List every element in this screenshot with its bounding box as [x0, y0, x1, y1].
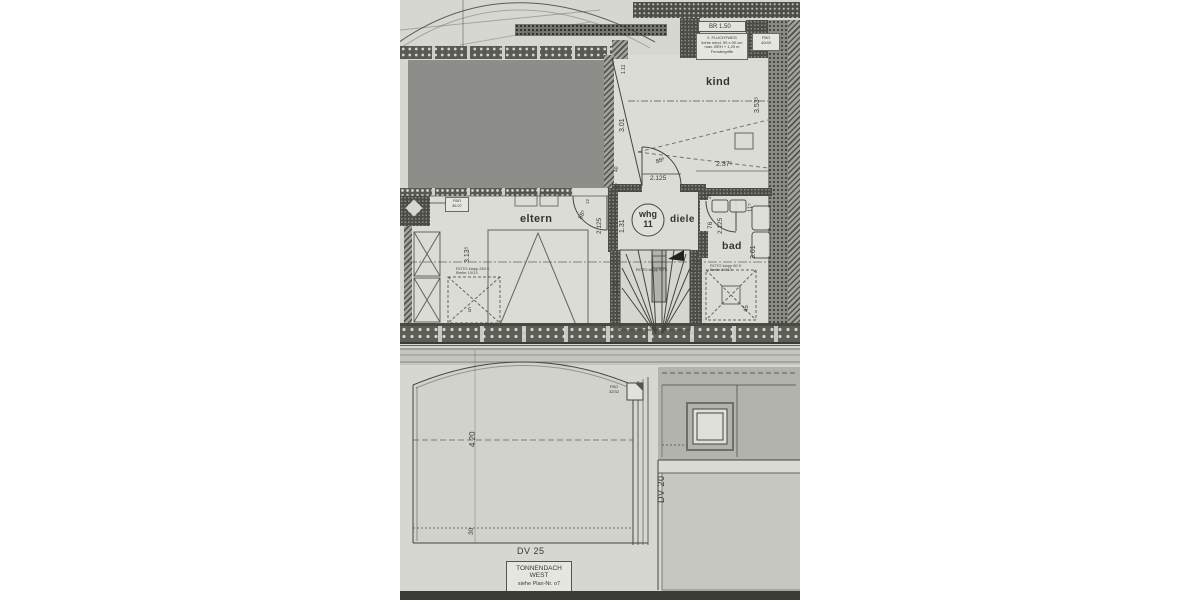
dim-diele-width: 1.31 — [619, 219, 626, 233]
fbo-tag-roof: FBO 32/32 — [603, 384, 625, 397]
dim-eltern-bottom: 5 — [468, 308, 471, 314]
room-label-bad: bad — [722, 240, 742, 252]
floor-plan-upper: BR 1.50 2. FLUCHTWEG lichte mind. 90 x 9… — [400, 0, 800, 345]
dim-kind-jamb-a: 40 — [615, 166, 620, 172]
roof-plan-linework — [400, 345, 800, 600]
room-label-kind: kind — [706, 76, 730, 88]
note-line-4: Fenstergriffe — [697, 50, 747, 55]
dim-eltern-door-height: 2.125 — [597, 218, 604, 234]
room-label-eltern: eltern — [520, 213, 552, 225]
dim-kind-height: 3.01 — [619, 118, 626, 132]
fbo-roof-line2: 32/32 — [603, 390, 625, 395]
window-bar: BR 1.50 — [698, 21, 746, 32]
dim-kind-top: 1.11 — [622, 65, 627, 74]
unit-badge-whg-11: whg 11 — [632, 204, 664, 236]
window-sill-height: BR 1.50 — [709, 24, 731, 30]
label-dv25: DV 25 — [517, 547, 545, 556]
roto-bad-line2: Breite 10/13 — [710, 268, 742, 272]
dim-eltern-top: 12 — [586, 199, 591, 204]
unit-badge-line1: whg — [632, 209, 664, 219]
roto-note-eltern: ROTO klapp 260 K Breite 10/13 — [456, 267, 490, 275]
label-dv20: DV 20 — [657, 475, 666, 503]
stair-note: ROTO klapp 60 K — [636, 268, 668, 272]
dim-roof-panel-height: 4.20 — [469, 431, 477, 447]
dim-kind-shelf: 3.53⁵ — [754, 96, 761, 113]
title-line-2: WEST — [507, 572, 571, 579]
dim-bad-top: 11⁵ — [748, 203, 754, 212]
roto-note-bad: ROTO klapp 80 K Breite 10/13 — [710, 264, 742, 272]
roof-plan-lower: FBO 32/32 4.20 30 DV 25 DV 20 TONNENDACH… — [400, 345, 800, 600]
dim-bad-bottom: 45 — [744, 305, 750, 312]
room-label-diele: diele — [670, 214, 695, 225]
dim-kind-door-height: 2.125 — [650, 176, 666, 183]
dim-eltern-height: 3.13⁵ — [464, 246, 471, 263]
dim-bad-door-height: 2.125 — [718, 218, 725, 234]
fbo-eltern-line2: 36.07 — [446, 204, 468, 209]
dim-bad-height: 3.01 — [750, 245, 757, 259]
dim-kind-jamb-b: 11⁵ — [615, 183, 620, 190]
title-line-3: siehe Plan-Nr. o7 — [507, 581, 571, 587]
scanned-plan-strip: BR 1.50 2. FLUCHTWEG lichte mind. 90 x 9… — [400, 0, 800, 600]
fbo-tag-kind: FBO 40/40 — [752, 33, 780, 51]
dim-kind-width: 2.37⁵ — [716, 161, 733, 168]
unit-badge-line2: 11 — [632, 219, 664, 229]
dim-bad-door-width: 76 — [708, 222, 715, 229]
dim-roof-panel-bottom: 30 — [469, 528, 476, 535]
dim-stair-length: 1.70 — [613, 280, 620, 294]
roto-eltern-line2: Breite 10/13 — [456, 271, 490, 275]
fbo-tag-eltern: FBO 36.07 — [445, 197, 469, 212]
dim-bad-door-top: 26 — [708, 193, 713, 199]
fbo-kind-line2: 40/40 — [753, 41, 779, 46]
escape-window-note: 2. FLUCHTWEG lichte mind. 90 x 90 cm max… — [696, 33, 748, 60]
title-line-1: TONNENDACH — [507, 565, 571, 572]
scan-bottom-edge — [400, 591, 800, 600]
